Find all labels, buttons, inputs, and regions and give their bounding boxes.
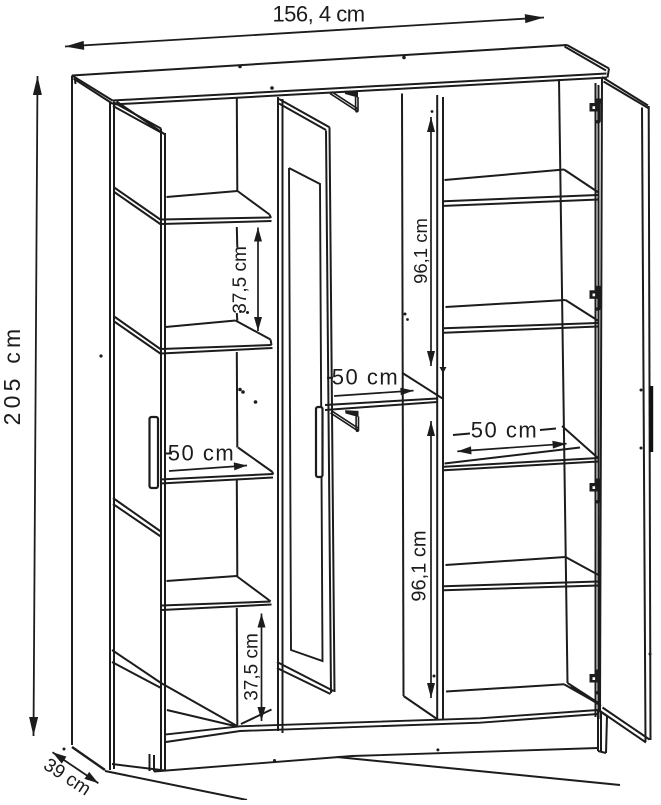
svg-text:96,1 cm: 96,1 cm — [410, 218, 431, 284]
svg-text:205 cm: 205 cm — [0, 325, 25, 426]
svg-text:37,5 cm: 37,5 cm — [230, 246, 251, 314]
svg-text:96,1 cm: 96,1 cm — [409, 530, 431, 601]
svg-text:50 cm: 50 cm — [471, 418, 538, 443]
svg-text:50 cm: 50 cm — [332, 365, 399, 390]
svg-text:156, 4 cm: 156, 4 cm — [272, 2, 364, 27]
svg-text:37,5 cm: 37,5 cm — [242, 633, 263, 701]
svg-text:50 cm: 50 cm — [168, 441, 235, 466]
